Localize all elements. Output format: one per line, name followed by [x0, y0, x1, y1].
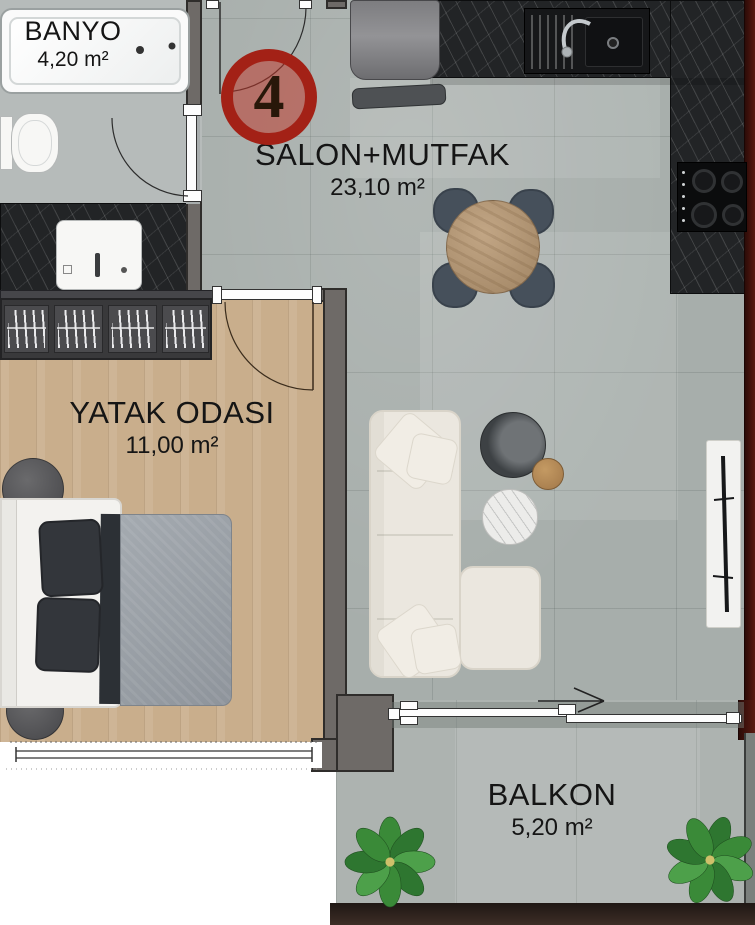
room-area: 4,20 m²: [2, 48, 144, 72]
door-direction-arrow-icon: [538, 688, 604, 712]
unit-number: 4: [254, 62, 285, 133]
window-end-ticks: [16, 747, 312, 762]
tub-tap-dot: [169, 43, 176, 50]
room-area: 5,20 m²: [432, 815, 672, 842]
plant-icon: [664, 814, 755, 906]
window-glass-lines: [16, 751, 312, 758]
unit-number-badge: 4: [221, 49, 317, 145]
room-label-balkon: BALKON 5,20 m²: [432, 778, 672, 842]
bathroom-door-arc: [112, 118, 188, 196]
room-label-banyo: BANYO 4,20 m²: [2, 16, 144, 72]
room-name: BALKON: [432, 778, 672, 813]
faucet-base: [562, 47, 572, 57]
room-area: 23,10 m²: [255, 175, 500, 202]
room-area: 11,00 m²: [52, 433, 292, 460]
room-name: BANYO: [2, 16, 144, 46]
room-label-yatak-odasi: YATAK ODASI 11,00 m²: [52, 396, 292, 460]
room-name: YATAK ODASI: [52, 396, 292, 431]
floor-plan: BANYO 4,20 m² SALON+MUTFAK 23,10 m² YATA…: [0, 0, 755, 925]
bedroom-door-arc: [225, 302, 313, 390]
room-name: SALON+MUTFAK: [255, 138, 500, 173]
room-label-salon-mutfak: SALON+MUTFAK 23,10 m²: [255, 138, 500, 202]
plant-icon: [344, 816, 436, 908]
tv-icon: [723, 456, 727, 612]
